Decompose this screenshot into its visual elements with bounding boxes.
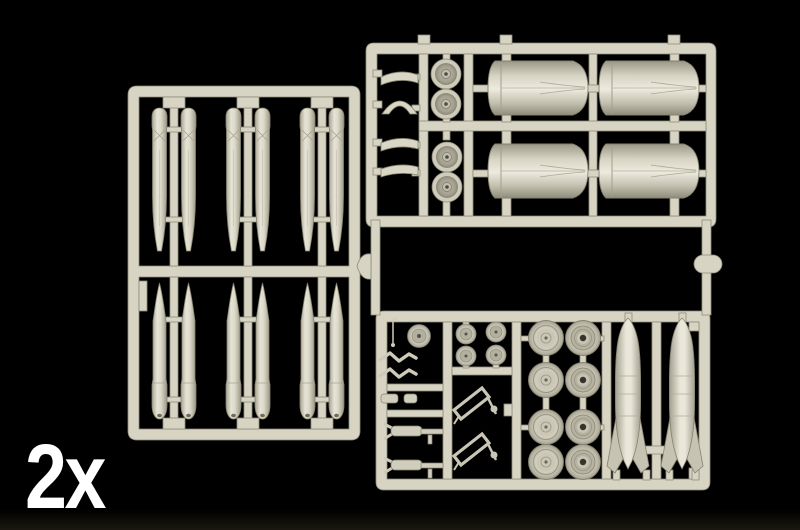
- wheel-hub-disc-part: [456, 346, 476, 366]
- missile-half-part: [226, 283, 241, 419]
- intake-lip-part: [381, 138, 418, 151]
- runner: [387, 410, 443, 417]
- engine-fan-disc-part: [432, 172, 462, 202]
- ejector-tab: [418, 35, 430, 44]
- sprue-bottom-right-undercarriage: [376, 311, 710, 490]
- engine-nacelle-part: [488, 144, 588, 198]
- retraction-strut-part: [454, 388, 498, 424]
- product-photo: 2x: [0, 0, 800, 530]
- sprue-left-stores: [128, 86, 360, 440]
- store-half-part: [300, 108, 315, 251]
- runner: [452, 367, 512, 375]
- engine-fan-disc-part: [431, 59, 461, 89]
- runner: [419, 121, 706, 131]
- missile-half-part: [152, 283, 167, 419]
- retraction-strut-part: [454, 434, 498, 470]
- landing-gear-leg-part: [384, 424, 443, 444]
- sprue-gate: [694, 255, 722, 273]
- sprue-connectors: [357, 220, 722, 315]
- missile-half-part: [300, 283, 315, 419]
- engine-nacelle-part: [599, 61, 699, 115]
- missile-half-part: [255, 283, 270, 419]
- mould-tag: [139, 281, 147, 311]
- main-wheel-part: [566, 445, 601, 480]
- store-half-part: [226, 108, 241, 251]
- runner: [464, 54, 473, 216]
- ejector-tab: [668, 35, 680, 44]
- intake-lip-part: [381, 72, 418, 85]
- runner: [652, 322, 661, 479]
- main-wheel-part: [566, 321, 601, 356]
- intake-lip-parts: [381, 72, 418, 177]
- drop-tank-part: [607, 318, 649, 473]
- ejector-tab: [500, 35, 512, 44]
- engine-fan-disc-part: [432, 142, 462, 172]
- quantity-label: 2x: [25, 431, 104, 523]
- intake-lip-part: [382, 101, 417, 114]
- floor-shadow: [0, 510, 800, 530]
- small-cylinder-part: [404, 394, 417, 403]
- main-wheel-part: [529, 410, 564, 445]
- main-wheel-part: [529, 321, 564, 356]
- engine-nacelle-part: [599, 144, 699, 198]
- wheel-hub-disc-part: [486, 322, 506, 342]
- wheel-hub-disc-part: [456, 324, 476, 344]
- runner: [443, 322, 452, 479]
- runner: [589, 54, 597, 216]
- sprue-photo-illustration: [0, 0, 800, 530]
- main-wheel-part: [529, 363, 564, 398]
- runner: [512, 322, 521, 479]
- nose-wheel-disc-part: [408, 325, 431, 348]
- small-cylinder-part: [381, 394, 398, 403]
- engine-nacelle-part: [488, 61, 588, 115]
- connector-runner: [371, 220, 380, 315]
- store-half-part: [329, 108, 344, 251]
- sprue-top-right-engines: [366, 35, 716, 227]
- store-half-part: [181, 108, 196, 251]
- landing-gear-leg-part: [384, 458, 443, 478]
- main-wheel-part: [566, 363, 601, 398]
- runner: [387, 384, 443, 391]
- missile-half-part: [181, 283, 196, 419]
- small-parts-column: [380, 318, 443, 478]
- drop-tank-part: [661, 318, 703, 473]
- main-wheel-part: [529, 445, 564, 480]
- main-wheel-part: [566, 410, 601, 445]
- engine-fan-disc-part: [431, 89, 461, 119]
- wheel-hub-disc-part: [486, 345, 506, 365]
- missile-half-part: [329, 283, 344, 419]
- store-half-part: [255, 108, 270, 251]
- store-half-part: [152, 108, 167, 251]
